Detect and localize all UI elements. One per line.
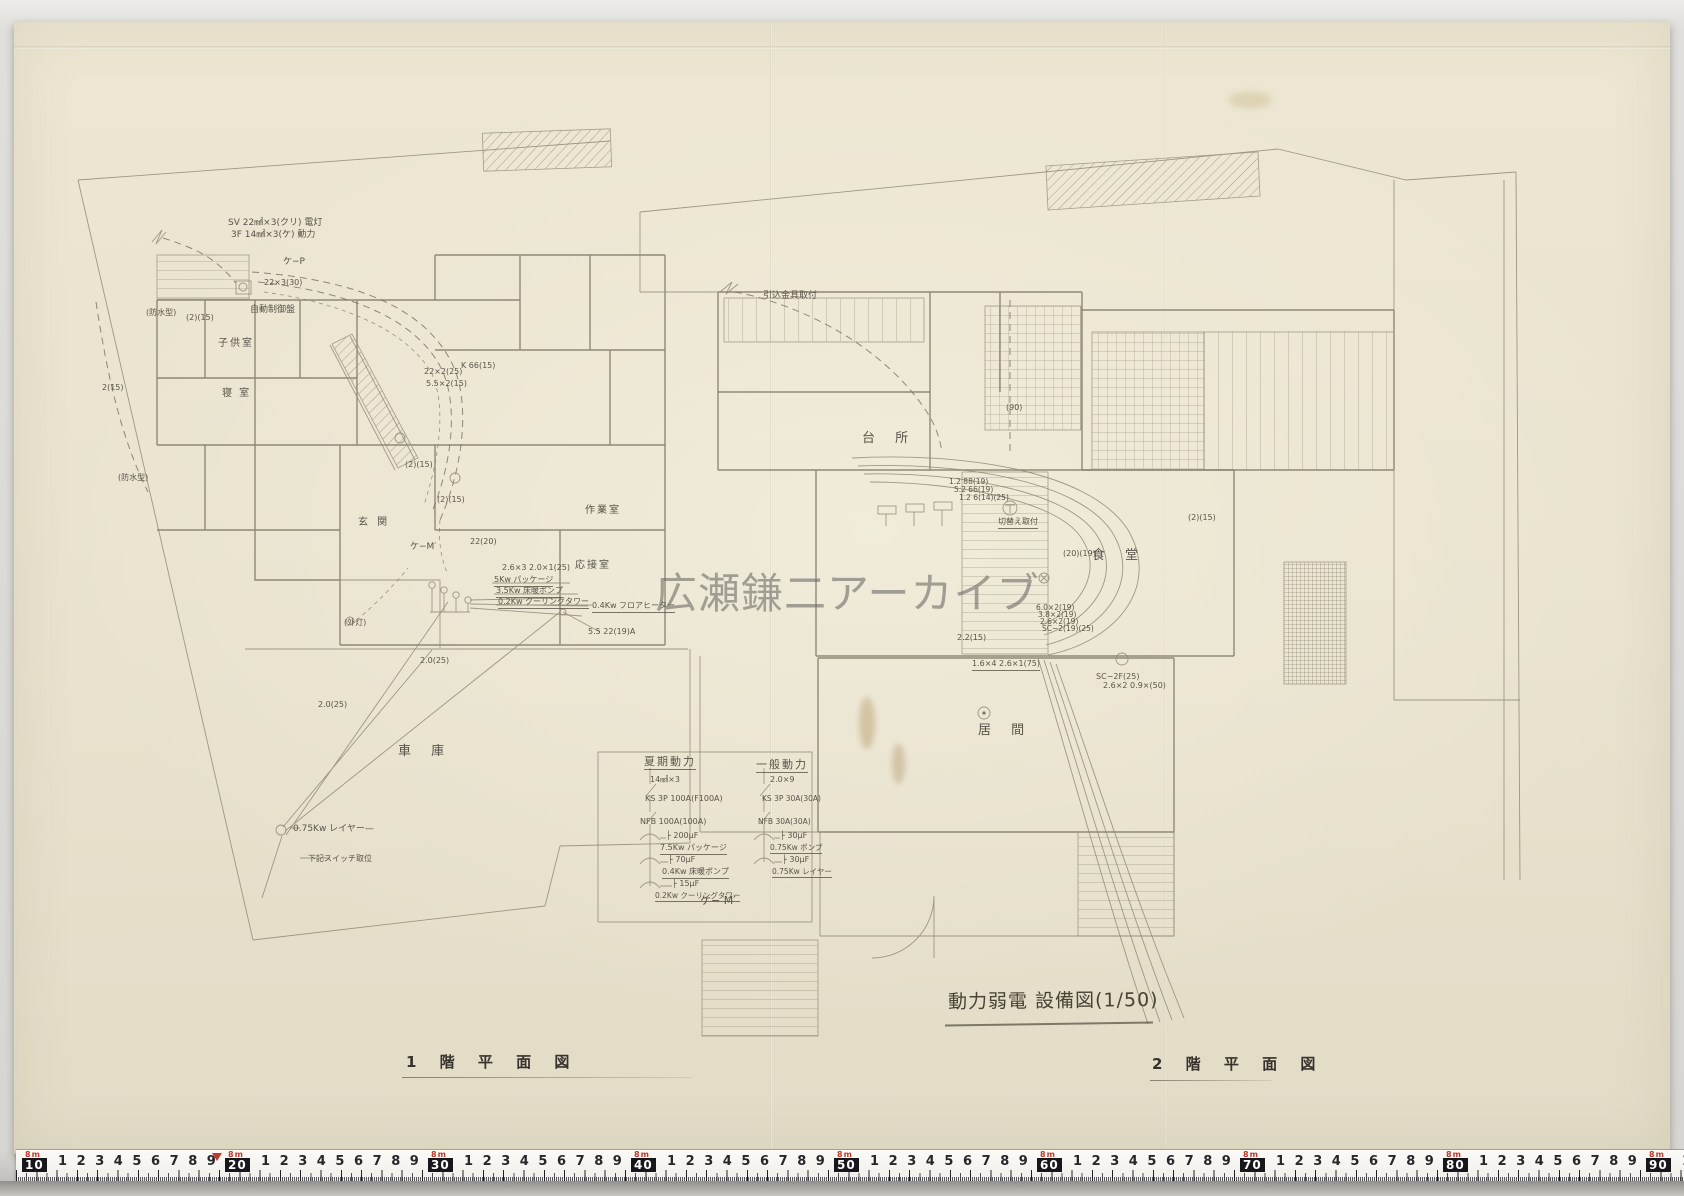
ruler-digit: 1: [261, 1154, 270, 1169]
ruler-digit: 8: [594, 1154, 603, 1169]
drawing-label: 22×3(30): [264, 279, 302, 288]
drawing-label: (2)(15): [405, 461, 433, 470]
ruler-digit: 5: [1147, 1154, 1156, 1169]
drawing-label: 22(20): [470, 538, 497, 547]
drawing-label: ├ 30μF: [780, 832, 807, 841]
drawing-label: ├ 30μF: [782, 856, 809, 865]
ruler-digit: 5: [741, 1154, 750, 1169]
ruler-digit: 6: [1572, 1154, 1581, 1169]
ruler-digit: 5: [944, 1154, 953, 1169]
drawing-label: (2)(15): [437, 496, 465, 505]
ruler-digit: 6: [1369, 1154, 1378, 1169]
drawing-label: 車 庫: [398, 745, 452, 759]
ruler-digit: 5: [1350, 1154, 1359, 1169]
drawing-label: 作業室: [585, 505, 621, 516]
drawing-label: 自動制御盤: [250, 306, 295, 316]
ruler-digit: 8: [1203, 1154, 1212, 1169]
ruler-digit: 8: [1609, 1154, 1618, 1169]
drawing-label: 1.2 6(14)(25): [959, 494, 1009, 502]
ruler-digit: 1: [1479, 1154, 1488, 1169]
drawing-label: 1.6×4 2.6×1(75): [972, 660, 1040, 671]
ruler-digit: 2: [1498, 1154, 1507, 1169]
drawing-label: 5.5 22(19)A: [588, 628, 635, 637]
ruler-digit: 3: [1110, 1154, 1119, 1169]
ruler-digit: 8: [797, 1154, 806, 1169]
drawing-label: K 66(15): [461, 362, 495, 371]
ruler-major-ticks: [16, 1170, 1684, 1181]
ruler-digit: 5: [1553, 1154, 1562, 1169]
drawing-label: NFB 30A(30A): [758, 818, 811, 826]
ruler-digit: 2: [1092, 1154, 1101, 1169]
drawing-label: 7.5Kw パッケージ: [660, 844, 727, 855]
ruler-digit: 7: [373, 1154, 382, 1169]
ruler-digit: 4: [1535, 1154, 1544, 1169]
ruler-digit: 9: [1222, 1154, 1231, 1169]
drawing-label: ├ 200μF: [666, 832, 698, 841]
ruler-digit: 4: [520, 1154, 529, 1169]
drawing-label: 切替え取付: [998, 518, 1038, 529]
ruler-digit: 9: [410, 1154, 419, 1169]
ruler-digit: 9: [613, 1154, 622, 1169]
ruler-digit: 8: [1000, 1154, 1009, 1169]
ruler-digit: 4: [1332, 1154, 1341, 1169]
drawing-label: (2)(15): [1188, 514, 1216, 523]
ruler-digit: 7: [576, 1154, 585, 1169]
sheet-title: 動力弱電 設備図(1/50): [948, 990, 1159, 1013]
ruler-digit: 1: [1276, 1154, 1285, 1169]
drawing-label: 夏期動力: [644, 756, 696, 770]
drawing-label: (外灯): [344, 619, 366, 628]
drawing-label: 2(15): [102, 384, 124, 393]
drawing-label: 14㎟×3: [650, 776, 680, 785]
ruler-digit: 3: [1516, 1154, 1525, 1169]
ruler-digit: 7: [1388, 1154, 1397, 1169]
ruler-digit: 3: [704, 1154, 713, 1169]
ruler-digit: 5: [538, 1154, 547, 1169]
drawing-label: 2.0(25): [420, 657, 449, 666]
ruler-digit: 8: [188, 1154, 197, 1169]
ruler-digit: 1: [464, 1154, 473, 1169]
drawing-label: (2)(15): [186, 314, 214, 323]
ruler-digit: 3: [95, 1154, 104, 1169]
plan-right-title: 2 階 平 面 図: [1152, 1053, 1324, 1074]
drawing-label: 22×2(25): [424, 368, 462, 377]
archive-watermark: 広瀬鎌二アーカイブ: [655, 560, 1039, 621]
ruler-digit: 6: [354, 1154, 363, 1169]
drawing-label: SV 22㎟×3(クリ) 電灯: [228, 219, 322, 229]
drawing-label: 0.2Kw クーリングタワー: [498, 598, 589, 609]
ruler-digit: 9: [816, 1154, 825, 1169]
ruler-digit: 4: [1129, 1154, 1138, 1169]
drawing-label: 一般動力: [756, 759, 808, 773]
ruler-digit: 1: [667, 1154, 676, 1169]
drawing-label: ケ− M′: [700, 895, 736, 907]
drawing-label: 5.5×2(15): [426, 380, 467, 389]
drawing-label: ケ−P: [283, 258, 305, 268]
drawing-label: 食 堂: [1092, 549, 1146, 563]
drawing-label: 応接室: [575, 560, 611, 571]
drawing-label: SC−2(19)(25): [1042, 625, 1094, 633]
ruler-digit: 6: [1166, 1154, 1175, 1169]
ruler-digit: 4: [114, 1154, 123, 1169]
ruler-digit: 9: [1425, 1154, 1434, 1169]
drawing-label: KS 3P 100A(F100A): [645, 795, 723, 804]
drawing-label: 3F 14㎟×3(ケ) 動力: [231, 231, 315, 241]
ruler-digit: 7: [1185, 1154, 1194, 1169]
drawing-label: 台 所: [862, 432, 916, 446]
drawing-label: ケ−M′: [410, 543, 436, 553]
drawing-label: (防水型): [118, 474, 148, 483]
ruler-digit: 7: [1591, 1154, 1600, 1169]
scanned-archive-page: SV 22㎟×3(クリ) 電灯3F 14㎟×3(ケ) 動力ケ−P22×3(30)…: [0, 0, 1684, 1196]
drawing-label: 2.6×2 0.9×(50): [1103, 682, 1166, 691]
ruler-digit: 2: [483, 1154, 492, 1169]
ruler-digit: 5: [335, 1154, 344, 1169]
ruler-digit: 6: [760, 1154, 769, 1169]
ruler-digit: 3: [1313, 1154, 1322, 1169]
drawing-label: 0.4Kw 床暖ポンプ: [662, 868, 729, 879]
plan-right-underline: [1150, 1080, 1272, 1081]
ruler-digit: 2: [686, 1154, 695, 1169]
drawing-label: (20)(19): [1063, 550, 1096, 559]
ruler-digit: 9: [1628, 1154, 1637, 1169]
scan-shadow-strip: [0, 1181, 1684, 1196]
ruler-digit: 4: [723, 1154, 732, 1169]
ruler-digit: 4: [317, 1154, 326, 1169]
ruler-digit: 5: [132, 1154, 141, 1169]
drawing-label: 引込金具取付: [763, 292, 817, 302]
drawing-label: NFB 100A(100A): [640, 818, 706, 827]
ruler-digit: 6: [963, 1154, 972, 1169]
ruler-digit: 1: [1073, 1154, 1082, 1169]
ruler-digit: 7: [982, 1154, 991, 1169]
ruler-digit: 1: [870, 1154, 879, 1169]
drawing-label: 0.75Kw レイヤー—: [293, 825, 374, 835]
drawing-label: ├ 70μF: [668, 856, 695, 865]
drawing-label: 子供室: [218, 338, 254, 349]
drawing-label: 居 間: [978, 724, 1032, 738]
drawing-label: (防水型): [146, 309, 176, 318]
ruler-digit: 7: [779, 1154, 788, 1169]
ruler-digit: 9: [1019, 1154, 1028, 1169]
drawing-label: 下記スイッチ取位: [308, 855, 372, 864]
ruler-digit: 3: [501, 1154, 510, 1169]
drawing-label: 寝 室: [222, 388, 251, 399]
drawing-label: 2.2(15): [957, 634, 986, 643]
drawing-label: KS 3P 30A(30A): [762, 795, 821, 803]
ruler-digit: 8: [1406, 1154, 1415, 1169]
drawing-label: 玄 関: [358, 517, 390, 528]
ruler-digit: 1: [58, 1154, 67, 1169]
drawing-label: 0.75Kw レイヤー: [772, 868, 832, 878]
measuring-tape-ruler: 8m101234567898m201234567898m301234567898…: [16, 1150, 1684, 1181]
drawing-label: 2.0(25): [318, 701, 347, 710]
ruler-digit: 4: [926, 1154, 935, 1169]
drawing-label: 2.6×3 2.0×1(25): [502, 564, 570, 573]
ruler-red-arrow: [212, 1153, 222, 1166]
ruler-digit: 3: [907, 1154, 916, 1169]
ruler-digit: 6: [151, 1154, 160, 1169]
ruler-digit: 3: [298, 1154, 307, 1169]
ruler-digit: 7: [170, 1154, 179, 1169]
ruler-digit: 8: [391, 1154, 400, 1169]
ruler-digit: 2: [1295, 1154, 1304, 1169]
plan-left-title: 1 階 平 面 図: [406, 1051, 578, 1072]
drawing-label: (90): [1006, 404, 1022, 413]
drawing-label: 0.75Kw ポンプ: [770, 844, 822, 854]
plan-left-underline: [402, 1077, 692, 1078]
ruler-digit: 6: [557, 1154, 566, 1169]
ruler-digit: 2: [77, 1154, 86, 1169]
ruler-digit: 2: [280, 1154, 289, 1169]
drawing-label: ├ 15μF: [672, 880, 699, 889]
drawing-label: 2.0×9: [770, 776, 795, 785]
ruler-digit: 2: [889, 1154, 898, 1169]
